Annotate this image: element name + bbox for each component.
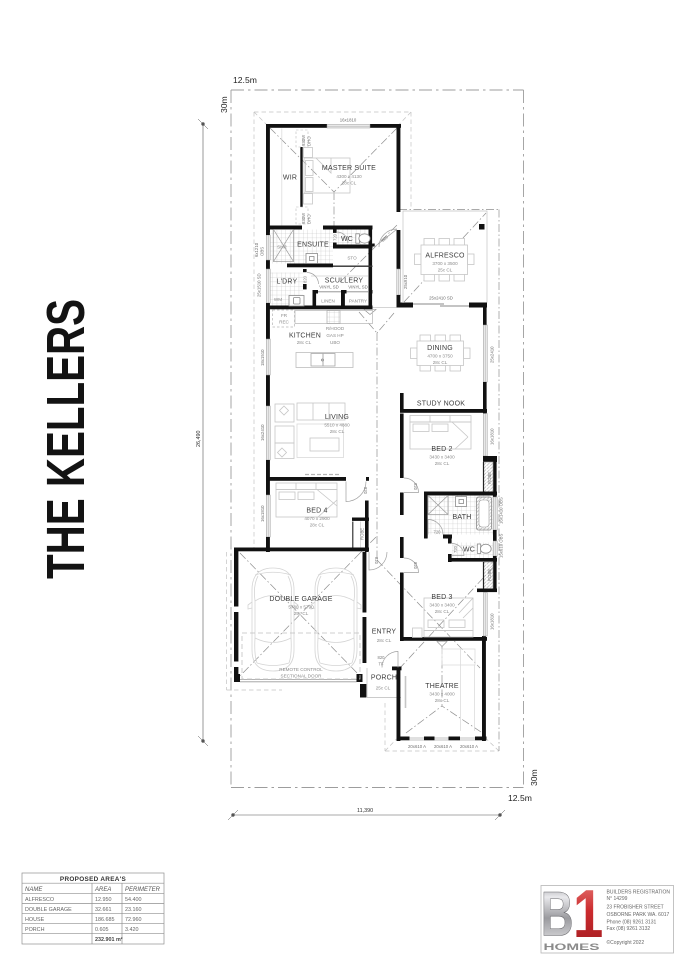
svg-text:LIVING: LIVING bbox=[325, 414, 349, 421]
svg-text:820: 820 bbox=[303, 275, 308, 283]
svg-text:ALFRESCO: ALFRESCO bbox=[25, 897, 54, 903]
svg-text:HOUSE: HOUSE bbox=[25, 917, 45, 923]
svg-text:5780 x 5790: 5780 x 5790 bbox=[288, 605, 314, 610]
svg-text:28c CL: 28c CL bbox=[342, 181, 357, 186]
svg-text:25x2410 SD: 25x2410 SD bbox=[429, 296, 453, 301]
svg-text:OBS: OBS bbox=[260, 247, 265, 256]
svg-text:28c CL: 28c CL bbox=[310, 523, 325, 528]
svg-text:PERIMETER: PERIMETER bbox=[125, 887, 161, 893]
svg-text:L'DRY: L'DRY bbox=[277, 279, 298, 286]
svg-text:GAS HP: GAS HP bbox=[326, 333, 343, 338]
svg-text:DHO: DHO bbox=[307, 214, 312, 224]
svg-text:28c CL: 28c CL bbox=[433, 360, 448, 365]
svg-text:ENSUITE: ENSUITE bbox=[297, 242, 329, 249]
svg-text:ENTRY: ENTRY bbox=[372, 629, 397, 636]
svg-text:23 FROBISHER STREET: 23 FROBISHER STREET bbox=[607, 904, 664, 910]
svg-text:6x1210: 6x1210 bbox=[254, 242, 259, 257]
svg-text:TF: TF bbox=[378, 662, 384, 667]
svg-text:BUILDERS REGISTRATION: BUILDERS REGISTRATION bbox=[607, 890, 671, 896]
svg-text:B: B bbox=[541, 880, 574, 950]
svg-text:REC: REC bbox=[279, 320, 289, 325]
svg-text:186.685: 186.685 bbox=[95, 917, 115, 923]
svg-text:930W: 930W bbox=[301, 134, 306, 146]
svg-text:BATH: BATH bbox=[453, 514, 472, 521]
svg-text:THEATRE: THEATRE bbox=[425, 683, 459, 690]
svg-text:DINING: DINING bbox=[427, 345, 453, 352]
svg-text:32.661: 32.661 bbox=[95, 907, 112, 913]
svg-text:DHO: DHO bbox=[307, 136, 312, 146]
svg-text:3700 x 3500: 3700 x 3500 bbox=[432, 261, 458, 266]
svg-text:MASTER SUITE: MASTER SUITE bbox=[322, 165, 376, 172]
svg-text:PORCH: PORCH bbox=[371, 675, 397, 682]
svg-text:BED 4: BED 4 bbox=[306, 508, 327, 515]
svg-text:REMOTE CONTROL: REMOTE CONTROL bbox=[279, 667, 323, 672]
svg-text:72.960: 72.960 bbox=[125, 917, 142, 923]
svg-text:12.5m: 12.5m bbox=[233, 75, 257, 85]
svg-text:20x610 A: 20x610 A bbox=[460, 744, 478, 749]
svg-text:18x1510: 18x1510 bbox=[260, 349, 265, 366]
svg-text:30m: 30m bbox=[219, 96, 229, 113]
svg-text:NAME: NAME bbox=[25, 887, 43, 893]
svg-text:16x1410 OBS: 16x1410 OBS bbox=[499, 497, 504, 524]
svg-text:ROBE: ROBE bbox=[487, 569, 492, 581]
svg-text:4300 x 4130: 4300 x 4130 bbox=[336, 174, 362, 179]
svg-text:ROBE: ROBE bbox=[487, 472, 492, 484]
svg-text:WM: WM bbox=[274, 297, 282, 302]
svg-text:12.950: 12.950 bbox=[95, 897, 112, 903]
svg-text:Fax (08) 9261 3132: Fax (08) 9261 3132 bbox=[607, 926, 651, 932]
svg-text:Phone (08) 9261 3131: Phone (08) 9261 3131 bbox=[607, 920, 657, 926]
svg-text:25x2410: 25x2410 bbox=[490, 346, 495, 363]
svg-text:R/HOOD: R/HOOD bbox=[326, 326, 345, 331]
svg-text:©Copyright 2022: ©Copyright 2022 bbox=[607, 939, 645, 946]
svg-text:15x610 OBS: 15x610 OBS bbox=[499, 534, 504, 558]
svg-text:23.160: 23.160 bbox=[125, 907, 142, 913]
svg-text:12.5m: 12.5m bbox=[508, 793, 532, 803]
svg-text:ROBE: ROBE bbox=[360, 528, 365, 540]
svg-text:820: 820 bbox=[413, 483, 418, 491]
svg-text:28c CL: 28c CL bbox=[435, 609, 450, 614]
svg-text:WC: WC bbox=[341, 236, 353, 243]
svg-text:AREA: AREA bbox=[94, 887, 111, 893]
svg-text:25c CL: 25c CL bbox=[438, 268, 453, 273]
svg-text:VINYL SD: VINYL SD bbox=[348, 285, 367, 290]
svg-text:28c CL: 28c CL bbox=[377, 638, 392, 643]
svg-text:16x1810: 16x1810 bbox=[340, 118, 357, 123]
svg-text:3430 x 3400: 3430 x 3400 bbox=[429, 455, 455, 460]
svg-text:N° 14299: N° 14299 bbox=[607, 896, 628, 902]
svg-text:OSBORNE PARK WA. 6017: OSBORNE PARK WA. 6017 bbox=[607, 912, 670, 918]
svg-text:16x2410: 16x2410 bbox=[260, 424, 265, 441]
svg-text:SECTIONAL DOOR: SECTIONAL DOOR bbox=[281, 674, 323, 679]
svg-text:UBO: UBO bbox=[330, 340, 340, 345]
svg-text:PORCH: PORCH bbox=[25, 927, 45, 933]
svg-text:25c CL: 25c CL bbox=[376, 686, 391, 691]
svg-text:HOMES: HOMES bbox=[544, 942, 600, 952]
svg-text:820: 820 bbox=[413, 562, 418, 570]
svg-text:20x610 A: 20x610 A bbox=[408, 744, 426, 749]
svg-text:25x910: 25x910 bbox=[403, 274, 408, 289]
svg-text:28c CL: 28c CL bbox=[435, 461, 450, 466]
svg-text:STUDY NOOK: STUDY NOOK bbox=[417, 401, 465, 408]
svg-text:THE KELLERS: THE KELLERS bbox=[36, 299, 96, 579]
svg-text:26,490: 26,490 bbox=[196, 431, 202, 448]
svg-text:PANTRY: PANTRY bbox=[349, 299, 367, 304]
svg-text:SCULLERY: SCULLERY bbox=[325, 278, 364, 285]
svg-text:0.605: 0.605 bbox=[95, 927, 109, 933]
svg-text:16x1810: 16x1810 bbox=[490, 428, 495, 445]
svg-text:16x1810: 16x1810 bbox=[260, 505, 265, 522]
svg-text:11,390: 11,390 bbox=[357, 808, 373, 814]
svg-text:WIR: WIR bbox=[283, 175, 297, 182]
svg-text:28c CL: 28c CL bbox=[330, 429, 345, 434]
svg-text:3.420: 3.420 bbox=[125, 927, 139, 933]
svg-text:720: 720 bbox=[333, 233, 338, 241]
svg-text:30m: 30m bbox=[529, 769, 539, 786]
svg-text:KITCHEN: KITCHEN bbox=[289, 333, 321, 340]
svg-text:820: 820 bbox=[363, 487, 368, 495]
svg-text:LINEN: LINEN bbox=[321, 299, 335, 304]
svg-text:3430 x 4000: 3430 x 4000 bbox=[429, 692, 455, 697]
svg-text:720: 720 bbox=[453, 545, 458, 553]
svg-text:28c CL: 28c CL bbox=[435, 698, 450, 703]
svg-text:25c CL: 25c CL bbox=[294, 611, 309, 616]
svg-text:5510 x 4880: 5510 x 4880 bbox=[324, 423, 350, 428]
svg-text:28c CL: 28c CL bbox=[297, 340, 312, 345]
svg-text:16x1810: 16x1810 bbox=[490, 613, 495, 630]
svg-text:54.400: 54.400 bbox=[125, 897, 142, 903]
svg-text:DOUBLE GARAGE: DOUBLE GARAGE bbox=[269, 596, 332, 603]
svg-text:930W: 930W bbox=[301, 212, 306, 224]
svg-text:BED 2: BED 2 bbox=[431, 446, 452, 453]
svg-text:3430 x 3400: 3430 x 3400 bbox=[429, 603, 455, 608]
svg-text:SHR: SHR bbox=[277, 245, 287, 250]
svg-text:PROPOSED AREA'S: PROPOSED AREA'S bbox=[60, 876, 127, 883]
svg-text:232.901 m²: 232.901 m² bbox=[95, 937, 123, 943]
svg-text:ALFRESCO: ALFRESCO bbox=[425, 253, 465, 260]
svg-text:DOUBLE GARAGE: DOUBLE GARAGE bbox=[25, 907, 72, 913]
svg-text:4700 x 3750: 4700 x 3750 bbox=[427, 354, 453, 359]
svg-text:VINYL SD: VINYL SD bbox=[319, 285, 338, 290]
svg-text:BED 3: BED 3 bbox=[431, 594, 452, 601]
svg-text:WC: WC bbox=[463, 547, 475, 554]
svg-text:20x610 A: 20x610 A bbox=[434, 744, 452, 749]
svg-text:4070 x 2900: 4070 x 2900 bbox=[304, 516, 330, 521]
svg-text:FR: FR bbox=[281, 313, 288, 318]
svg-text:STO: STO bbox=[347, 256, 357, 261]
svg-text:25x1510 SD: 25x1510 SD bbox=[257, 273, 262, 297]
svg-text:720: 720 bbox=[434, 530, 442, 535]
svg-text:820: 820 bbox=[378, 655, 386, 660]
svg-text:820: 820 bbox=[374, 557, 379, 565]
